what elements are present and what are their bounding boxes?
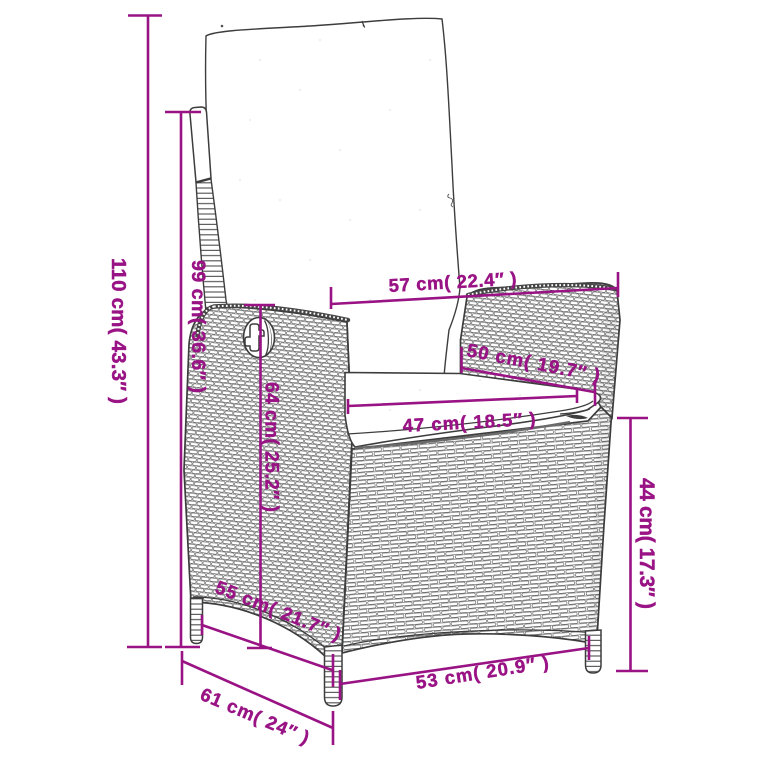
svg-text:44 cm( 17.3″ ): 44 cm( 17.3″ ) <box>635 478 658 609</box>
svg-text:110 cm( 43.3″ ): 110 cm( 43.3″ ) <box>107 258 130 404</box>
svg-text:99 cm( 36.6″ ): 99 cm( 36.6″ ) <box>187 260 209 393</box>
svg-text:64 cm( 25.2″ ): 64 cm( 25.2″ ) <box>261 382 282 512</box>
